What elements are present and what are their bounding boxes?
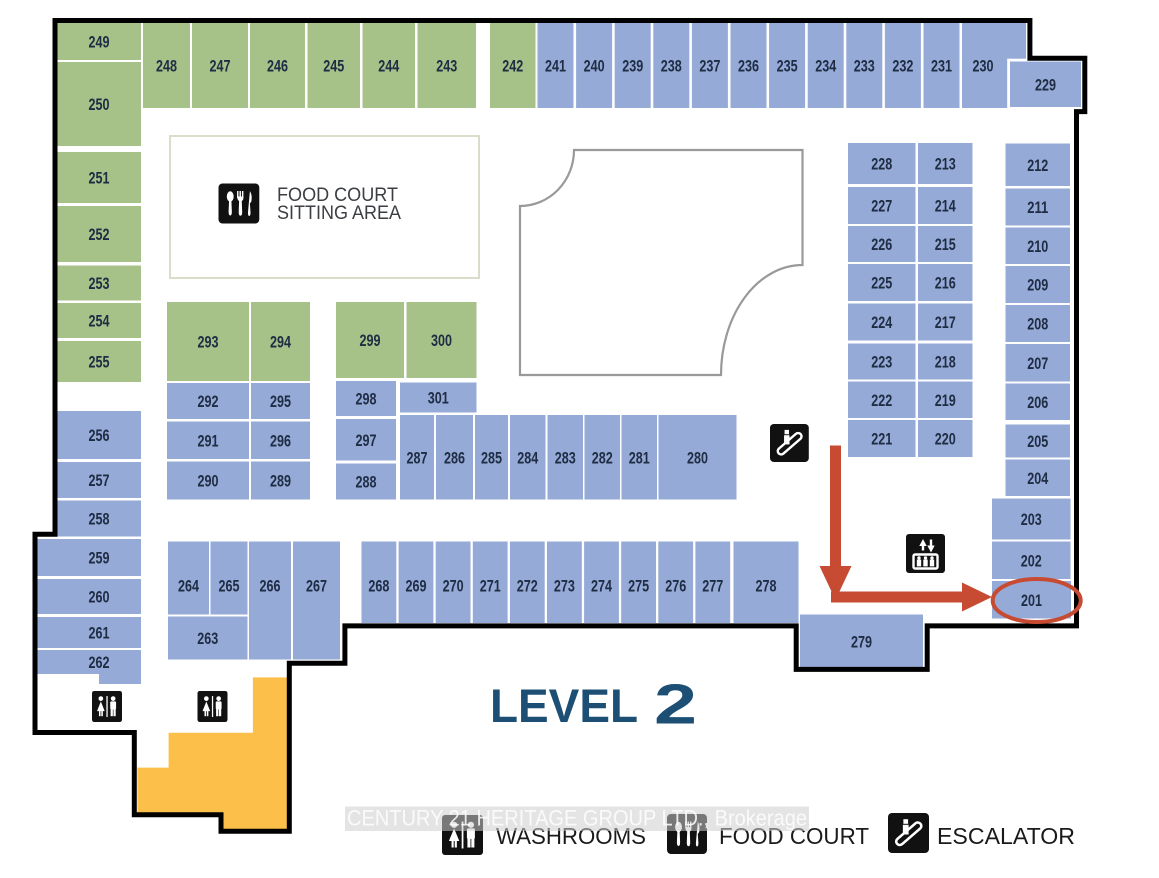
svg-text:267: 267: [306, 578, 327, 596]
svg-text:204: 204: [1027, 470, 1049, 488]
svg-text:300: 300: [431, 332, 452, 350]
svg-text:213: 213: [935, 156, 956, 174]
svg-text:218: 218: [935, 354, 956, 372]
svg-text:233: 233: [854, 58, 875, 76]
svg-text:224: 224: [871, 314, 893, 332]
svg-text:291: 291: [198, 432, 219, 450]
svg-text:246: 246: [267, 58, 288, 76]
svg-text:203: 203: [1021, 511, 1042, 529]
svg-text:229: 229: [1035, 76, 1056, 94]
svg-text:257: 257: [89, 472, 110, 490]
svg-text:265: 265: [219, 578, 240, 596]
svg-text:256: 256: [89, 427, 110, 445]
svg-text:276: 276: [665, 578, 686, 596]
svg-text:251: 251: [89, 170, 110, 188]
svg-text:209: 209: [1027, 277, 1048, 295]
svg-text:273: 273: [554, 578, 575, 596]
svg-text:283: 283: [555, 449, 576, 467]
svg-text:245: 245: [323, 58, 344, 76]
svg-text:243: 243: [436, 58, 457, 76]
svg-text:205: 205: [1027, 433, 1048, 451]
svg-text:220: 220: [935, 431, 956, 449]
svg-text:299: 299: [360, 332, 381, 350]
svg-text:225: 225: [871, 275, 892, 293]
svg-text:254: 254: [89, 313, 111, 331]
svg-text:223: 223: [871, 354, 892, 372]
svg-text:242: 242: [502, 58, 523, 76]
svg-text:268: 268: [368, 578, 389, 596]
svg-text:250: 250: [89, 96, 110, 114]
svg-text:290: 290: [198, 473, 219, 491]
svg-text:236: 236: [738, 58, 759, 76]
svg-text:241: 241: [545, 58, 566, 76]
svg-text:215: 215: [935, 236, 956, 254]
svg-text:244: 244: [378, 58, 400, 76]
svg-text:262: 262: [89, 654, 110, 672]
svg-text:261: 261: [89, 625, 110, 643]
svg-text:294: 294: [270, 334, 292, 352]
svg-text:274: 274: [591, 578, 613, 596]
svg-text:289: 289: [270, 473, 291, 491]
svg-text:281: 281: [629, 449, 650, 467]
svg-text:232: 232: [892, 58, 913, 76]
svg-text:286: 286: [444, 449, 465, 467]
svg-text:226: 226: [871, 236, 892, 254]
svg-text:275: 275: [628, 578, 649, 596]
svg-text:206: 206: [1027, 394, 1048, 412]
svg-text:228: 228: [871, 156, 892, 174]
svg-text:288: 288: [356, 474, 377, 492]
svg-text:298: 298: [356, 391, 377, 409]
svg-text:211: 211: [1027, 199, 1048, 217]
svg-text:202: 202: [1021, 552, 1042, 570]
svg-text:271: 271: [480, 578, 501, 596]
svg-text:260: 260: [89, 589, 110, 607]
svg-text:285: 285: [481, 449, 502, 467]
svg-text:269: 269: [406, 578, 427, 596]
svg-text:216: 216: [935, 275, 956, 293]
svg-text:LEVEL: LEVEL: [490, 679, 638, 732]
svg-text:292: 292: [198, 393, 219, 411]
svg-text:259: 259: [89, 550, 110, 568]
svg-text:258: 258: [89, 511, 110, 529]
svg-text:221: 221: [871, 431, 892, 449]
svg-text:301: 301: [428, 390, 449, 408]
svg-text:249: 249: [89, 34, 110, 52]
svg-text:295: 295: [270, 393, 291, 411]
svg-text:248: 248: [156, 58, 177, 76]
svg-text:253: 253: [89, 275, 110, 293]
svg-text:219: 219: [935, 392, 956, 410]
svg-text:280: 280: [687, 449, 708, 467]
svg-text:201: 201: [1021, 592, 1042, 610]
svg-text:SITTING AREA: SITTING AREA: [277, 203, 401, 224]
svg-text:278: 278: [756, 578, 777, 596]
svg-text:270: 270: [443, 578, 464, 596]
svg-text:212: 212: [1027, 157, 1048, 175]
svg-text:231: 231: [931, 58, 952, 76]
svg-text:208: 208: [1027, 316, 1048, 334]
svg-text:CENTURY 21 HERITAGE GROUP LTD.: CENTURY 21 HERITAGE GROUP LTD., Brokerag…: [347, 806, 807, 831]
svg-text:2: 2: [654, 673, 697, 737]
svg-text:207: 207: [1027, 355, 1048, 373]
svg-text:297: 297: [356, 432, 377, 450]
svg-text:238: 238: [661, 58, 682, 76]
svg-text:252: 252: [89, 226, 110, 244]
svg-text:279: 279: [851, 633, 872, 651]
svg-text:222: 222: [871, 392, 892, 410]
svg-text:210: 210: [1027, 238, 1048, 256]
svg-text:263: 263: [197, 630, 218, 648]
svg-text:240: 240: [584, 58, 605, 76]
svg-text:296: 296: [270, 432, 291, 450]
svg-text:ESCALATOR: ESCALATOR: [937, 823, 1075, 849]
svg-text:282: 282: [592, 449, 613, 467]
svg-text:217: 217: [935, 314, 956, 332]
svg-text:234: 234: [815, 58, 837, 76]
svg-text:287: 287: [407, 449, 428, 467]
svg-text:277: 277: [702, 578, 723, 596]
svg-text:284: 284: [517, 449, 539, 467]
svg-text:293: 293: [198, 334, 219, 352]
svg-text:214: 214: [935, 198, 957, 216]
svg-text:237: 237: [699, 58, 720, 76]
svg-text:235: 235: [777, 58, 798, 76]
svg-text:239: 239: [622, 58, 643, 76]
svg-text:264: 264: [178, 578, 200, 596]
svg-text:227: 227: [871, 198, 892, 216]
svg-text:255: 255: [89, 354, 110, 372]
svg-text:272: 272: [517, 578, 538, 596]
svg-text:266: 266: [260, 578, 281, 596]
svg-text:230: 230: [973, 58, 994, 76]
svg-text:247: 247: [210, 58, 231, 76]
